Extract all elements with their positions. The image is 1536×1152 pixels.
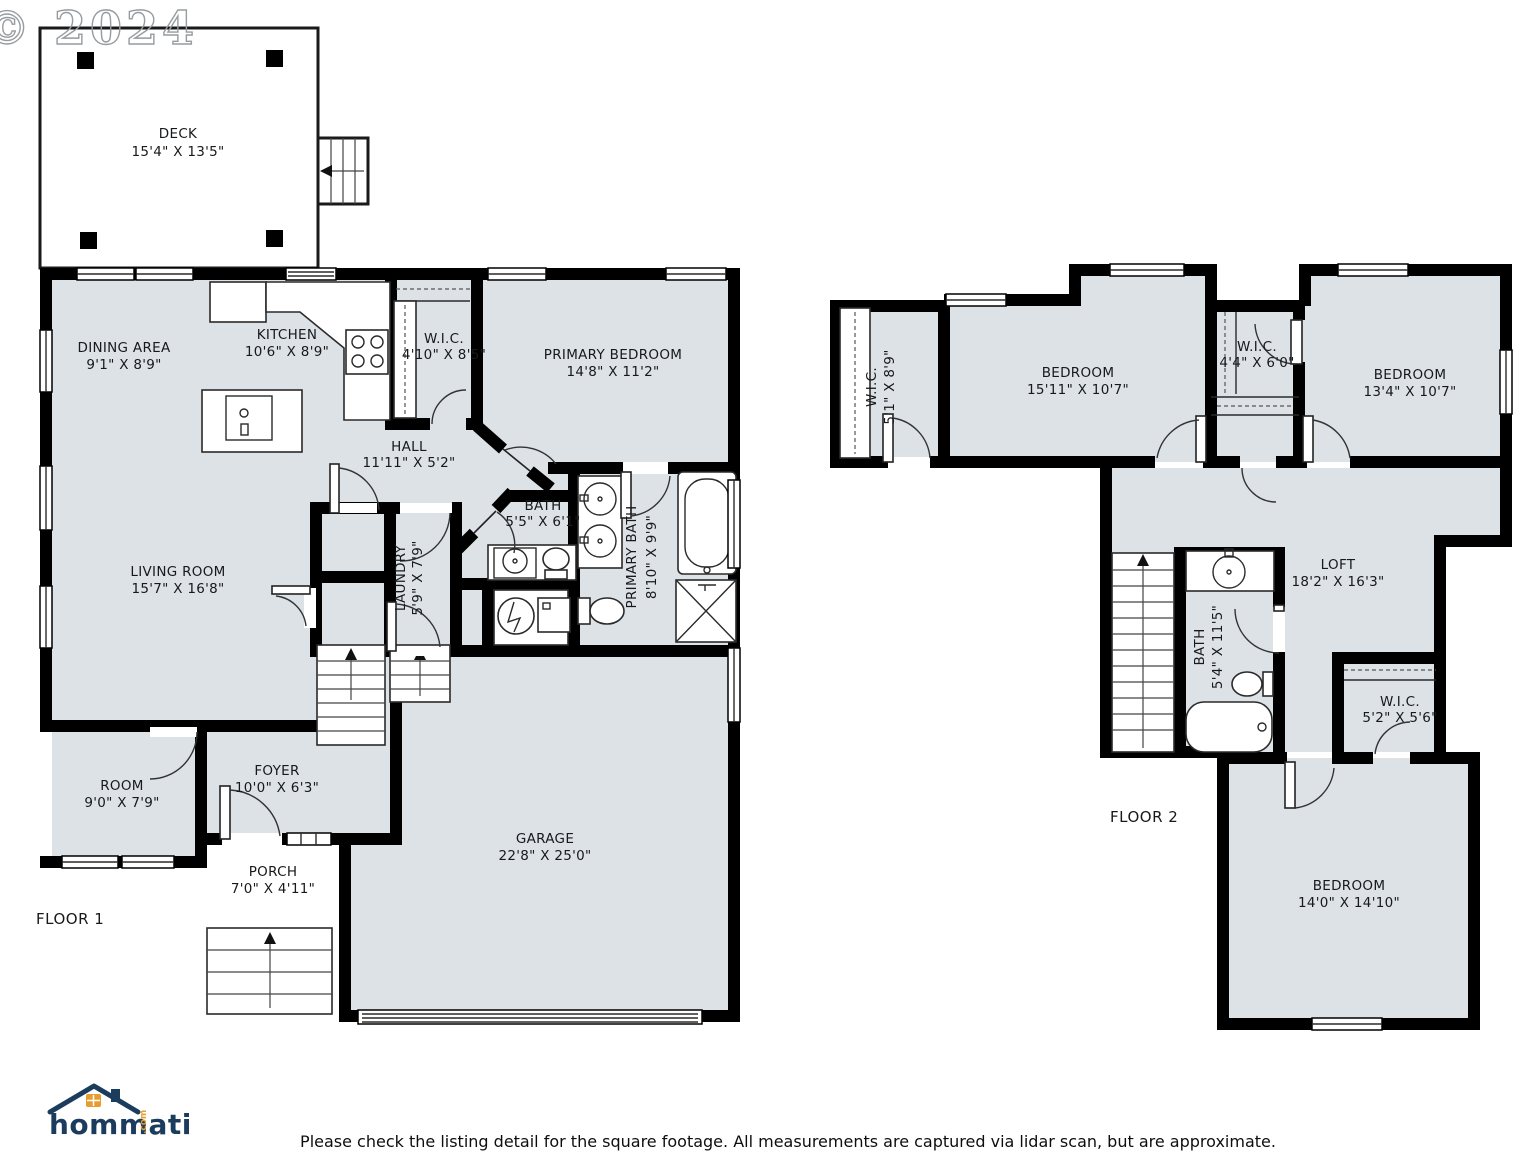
floor2-bath-tub [1186, 702, 1272, 752]
wic-mid-label: W.I.C. [1237, 339, 1277, 355]
garage-dims: 22'8" X 25'0" [498, 848, 591, 864]
bath-label: BATH [524, 498, 561, 514]
fridge [210, 282, 266, 322]
hall-label: HALL [391, 439, 427, 455]
foyer-label: FOYER [254, 763, 299, 779]
wic-left-label: W.I.C. [864, 367, 880, 407]
bath-toilet [543, 548, 569, 570]
porch-stairs [207, 928, 332, 1014]
room-label: ROOM [100, 778, 143, 794]
wic1-label: W.I.C. [424, 331, 464, 347]
bedroom-left-dims: 15'11" X 10'7" [1027, 382, 1129, 398]
laundry-appliances [494, 590, 570, 645]
deck-dims: 15'4" X 13'5" [131, 144, 224, 160]
living-dims: 15'7" X 16'8" [131, 581, 224, 597]
primary-bath-vanity [578, 476, 622, 568]
room-dims: 9'0" X 7'9" [84, 795, 159, 811]
floor-plan-page: DECK 15'4" X 13'5" [0, 0, 1536, 1152]
floor2: W.I.C. 5'1" X 8'9" BEDROOM 15'11" X 10'7… [830, 264, 1512, 1030]
bedroom-left-label: BEDROOM [1042, 365, 1115, 381]
primary-bedroom-label: PRIMARY BEDROOM [544, 347, 682, 363]
wic1-dims: 4'10" X 8'5" [402, 347, 486, 363]
floor-plan-drawing: DECK 15'4" X 13'5" [0, 0, 1536, 1152]
floor1-title: FLOOR 1 [36, 910, 104, 928]
floor2-title: FLOOR 2 [1110, 808, 1178, 826]
hommati-logo: hommati .com [49, 1086, 192, 1141]
deck: DECK 15'4" X 13'5" [40, 28, 368, 268]
floor1: DECK 15'4" X 13'5" [36, 28, 740, 1024]
wic-left-dims: 5'1" X 8'9" [882, 349, 898, 424]
living-label: LIVING ROOM [130, 564, 225, 580]
porch-dims: 7'0" X 4'11" [231, 881, 315, 897]
bedroom-bottom-label: BEDROOM [1313, 878, 1386, 894]
bedroom-bottom-dims: 14'0" X 14'10" [1298, 895, 1400, 911]
garage-label: GARAGE [516, 831, 574, 847]
floor2-stairs [1112, 553, 1174, 752]
kitchen-dims: 10'6" X 8'9" [245, 344, 329, 360]
bedroom-right-label: BEDROOM [1374, 367, 1447, 383]
porch-label: PORCH [249, 864, 298, 880]
laundry-dims: 5'9" X 7'9" [410, 540, 426, 615]
wic-loft-label: W.I.C. [1380, 694, 1420, 710]
wic-mid-dims: 4'4" X 6'0" [1219, 355, 1294, 371]
front-door-leaf [220, 786, 230, 839]
dining-label: DINING AREA [78, 340, 171, 356]
copyright-watermark: © 2024 [0, 1, 198, 55]
logo-tld-text: .com [139, 1110, 149, 1134]
foyer-dims: 10'0" X 6'3" [235, 780, 319, 796]
floor2-bath-toilet [1232, 672, 1262, 696]
stove [346, 330, 388, 374]
logo-brand-text: hommati [49, 1108, 192, 1141]
loft-dims: 18'2" X 16'3" [1291, 574, 1384, 590]
primary-bedroom-dims: 14'8" X 11'2" [566, 364, 659, 380]
laundry-label: LAUNDRY [393, 544, 409, 611]
kitchen-label: KITCHEN [257, 327, 318, 343]
primary-bath-toilet [590, 598, 624, 624]
bath-dims: 5'5" X 6'1" [505, 514, 580, 530]
floor2-bath-dims: 5'4" X 11'5" [1210, 605, 1226, 689]
bedroom-right-dims: 13'4" X 10'7" [1363, 384, 1456, 400]
deck-label: DECK [159, 126, 198, 142]
disclaimer-text: Please check the listing detail for the … [300, 1132, 1276, 1151]
logo-chimney-icon [111, 1089, 120, 1102]
floor2-bath-label: BATH [1192, 628, 1208, 665]
loft-label: LOFT [1321, 557, 1356, 573]
kitchen-island [202, 390, 302, 452]
primary-bath-dims: 8'10" X 9'9" [644, 515, 660, 599]
hall-dims: 11'11" X 5'2" [362, 455, 455, 471]
primary-bath-label: PRIMARY BATH [624, 506, 640, 609]
dining-dims: 9'1" X 8'9" [86, 357, 161, 373]
wic-loft-dims: 5'2" X 5'6" [1362, 710, 1437, 726]
